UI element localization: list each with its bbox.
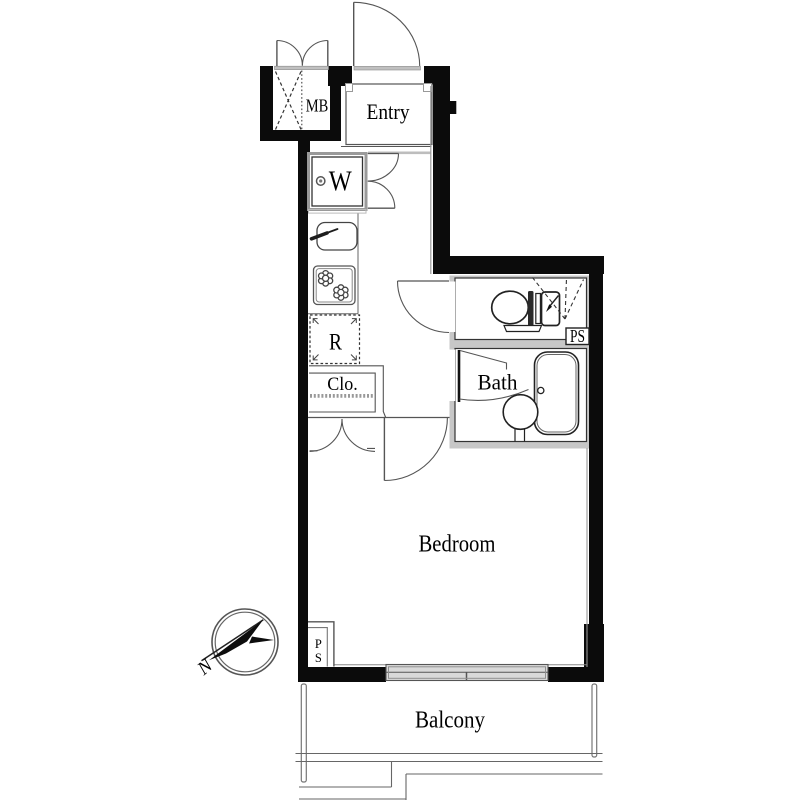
svg-text:PS: PS [570,326,585,346]
svg-text:MB: MB [306,96,329,116]
svg-text:P: P [315,637,322,651]
svg-text:Balcony: Balcony [415,708,485,734]
svg-text:Clo.: Clo. [327,374,358,395]
svg-text:R: R [329,330,343,355]
svg-text:S: S [315,651,322,665]
svg-text:Entry: Entry [367,99,410,124]
svg-text:W: W [329,167,352,198]
svg-text:Bedroom: Bedroom [419,532,496,558]
svg-text:Bath: Bath [478,370,518,395]
